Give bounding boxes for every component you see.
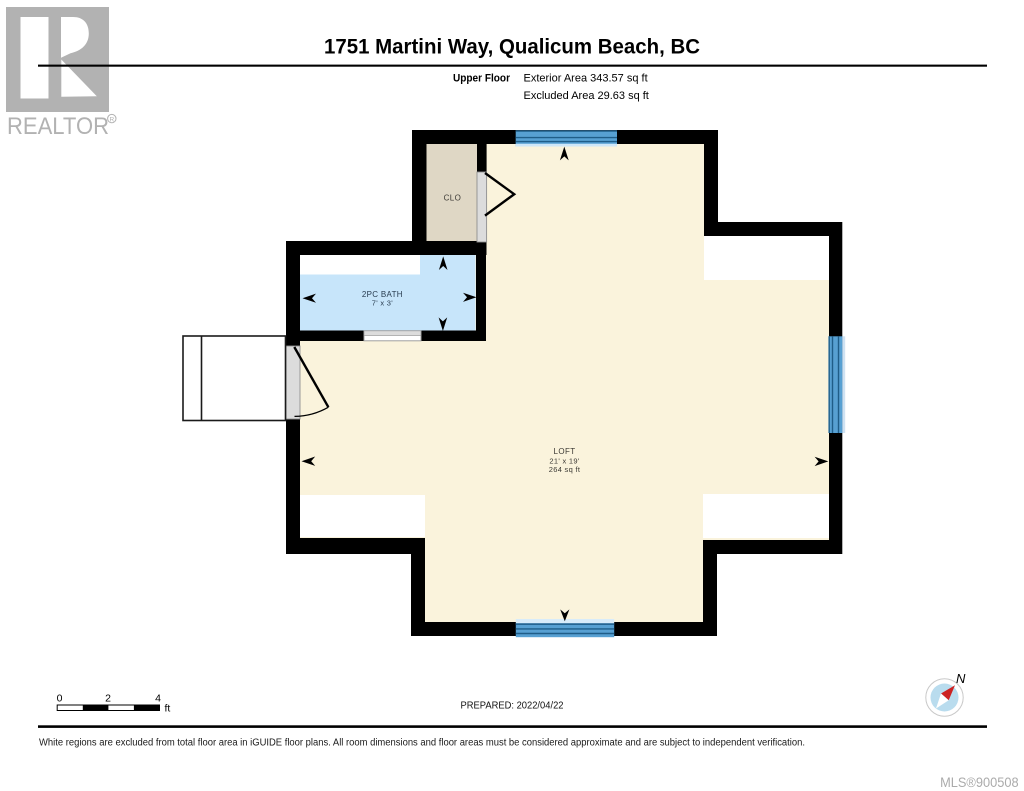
svg-text:PREPARED: 2022/04/22: PREPARED: 2022/04/22: [461, 701, 564, 712]
svg-text:CLO: CLO: [444, 193, 462, 202]
svg-text:0: 0: [57, 693, 63, 705]
svg-text:LOFT: LOFT: [553, 447, 575, 456]
svg-text:2PC BATH: 2PC BATH: [362, 290, 403, 299]
svg-text:Excluded Area 29.63 sq ft: Excluded Area 29.63 sq ft: [524, 90, 649, 102]
svg-text:ft: ft: [165, 703, 171, 715]
svg-text:7' x 3': 7' x 3': [372, 299, 393, 308]
svg-text:R: R: [109, 116, 114, 123]
svg-text:Exterior Area 343.57 sq ft: Exterior Area 343.57 sq ft: [524, 73, 648, 85]
svg-text:4: 4: [155, 693, 161, 705]
svg-text:MLS®900508: MLS®900508: [940, 774, 1019, 790]
svg-text:2: 2: [105, 693, 111, 705]
svg-text:21' x 19': 21' x 19': [549, 456, 579, 465]
svg-text:White regions are excluded fro: White regions are excluded from total fl…: [39, 738, 805, 749]
svg-text:N: N: [956, 671, 966, 686]
svg-text:Upper Floor: Upper Floor: [453, 73, 511, 85]
svg-text:264 sq ft: 264 sq ft: [549, 465, 581, 474]
svg-text:1751 Martini Way, Qualicum Bea: 1751 Martini Way, Qualicum Beach, BC: [324, 35, 700, 59]
svg-text:REALTOR: REALTOR: [7, 113, 109, 140]
